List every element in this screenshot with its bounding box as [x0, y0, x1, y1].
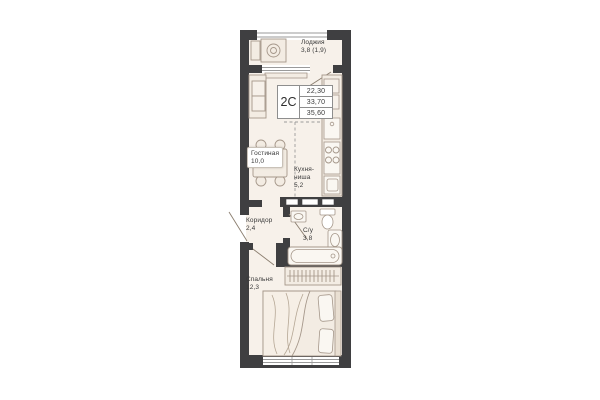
pillow-icon [318, 329, 334, 354]
room-area: 2,4 [246, 225, 272, 233]
room-area: 3,8 [303, 235, 313, 243]
chair-icon [275, 176, 285, 186]
unit-area-value: 22,30 [300, 86, 332, 97]
washing-machine-icon [251, 39, 286, 62]
kitchen-sink-icon [324, 118, 340, 139]
room-area: 3,8 (1,9) [301, 47, 326, 55]
room-label-living: Гостиная 10,0 [247, 147, 283, 168]
unit-type-label: 2С [278, 86, 300, 118]
room-name: ниша [294, 174, 314, 182]
floorplan-drawing [0, 0, 600, 400]
entrance-door-swing [229, 212, 247, 241]
unit-area-value: 33,70 [300, 97, 332, 108]
oven-icon [324, 176, 340, 194]
room-label-kitchen: Кухня- ниша 5,2 [294, 166, 314, 190]
chair-icon [256, 176, 266, 186]
room-area: 12,3 [246, 284, 273, 292]
washbasin-icon [291, 211, 306, 222]
stove-icon [324, 142, 340, 174]
room-name: Гостиная [251, 150, 279, 157]
room-name: Лоджия [301, 39, 325, 46]
unit-area-values: 22,30 33,70 35,60 [300, 86, 332, 118]
room-name: Кухня- [294, 166, 314, 173]
unit-area-value: 35,60 [300, 108, 332, 118]
room-label-corridor: Коридор 2,4 [246, 217, 272, 233]
room-area: 10,0 [251, 158, 279, 166]
room-area: 5,2 [294, 182, 314, 190]
unit-info-box: 2С 22,30 33,70 35,60 [277, 85, 333, 119]
room-name: Спальня [246, 276, 273, 283]
bed-icon [263, 291, 341, 356]
loggia-inner-window [262, 65, 310, 78]
room-name: Коридор [246, 217, 272, 224]
room-label-bathroom: С/у 3,8 [303, 227, 313, 243]
headboard [335, 291, 341, 356]
room-label-loggia: Лоджия 3,8 (1,9) [301, 39, 326, 55]
bedroom-window [263, 357, 339, 365]
room-label-bedroom: Спальня 12,3 [246, 276, 273, 292]
vent-shaft-icon [286, 199, 334, 205]
floorplan-canvas: Лоджия 3,8 (1,9) 2С 22,30 33,70 35,60 Го… [0, 0, 600, 400]
wardrobe-icon [285, 267, 341, 285]
bathtub-icon [288, 247, 342, 265]
room-name: С/у [303, 227, 313, 234]
sofa-icon [249, 75, 266, 118]
pillow-icon [318, 294, 334, 321]
